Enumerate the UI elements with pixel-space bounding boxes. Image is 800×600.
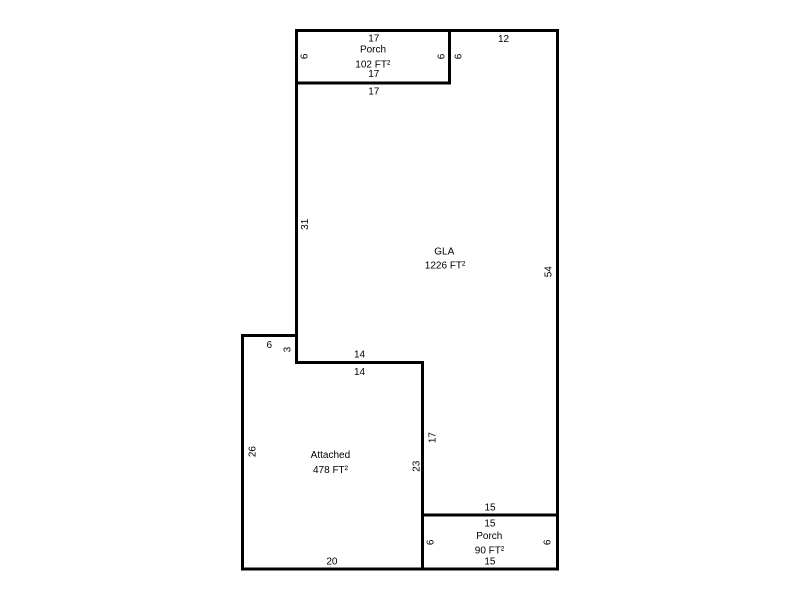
svg-text:6: 6 bbox=[300, 53, 311, 59]
svg-text:3: 3 bbox=[282, 346, 293, 352]
svg-text:23: 23 bbox=[411, 460, 422, 472]
svg-text:15: 15 bbox=[484, 502, 496, 513]
svg-text:6: 6 bbox=[453, 53, 464, 59]
svg-text:1226 FT²: 1226 FT² bbox=[425, 261, 466, 272]
svg-text:Porch: Porch bbox=[360, 45, 386, 56]
svg-text:Attached: Attached bbox=[311, 450, 350, 461]
svg-text:17: 17 bbox=[368, 87, 380, 98]
svg-text:17: 17 bbox=[427, 432, 438, 444]
svg-text:12: 12 bbox=[498, 34, 510, 45]
svg-text:17: 17 bbox=[368, 69, 380, 80]
svg-text:15: 15 bbox=[484, 557, 496, 568]
svg-text:6: 6 bbox=[543, 539, 554, 545]
svg-text:6: 6 bbox=[436, 53, 447, 59]
svg-text:15: 15 bbox=[484, 519, 496, 530]
svg-text:14: 14 bbox=[354, 367, 366, 378]
svg-text:6: 6 bbox=[426, 539, 437, 545]
svg-text:GLA: GLA bbox=[434, 246, 454, 257]
svg-text:Porch: Porch bbox=[476, 531, 502, 542]
svg-text:26: 26 bbox=[247, 446, 258, 458]
svg-text:17: 17 bbox=[368, 34, 380, 45]
svg-text:6: 6 bbox=[267, 340, 273, 351]
svg-text:31: 31 bbox=[300, 218, 311, 230]
svg-text:478 FT²: 478 FT² bbox=[313, 465, 349, 476]
svg-text:20: 20 bbox=[326, 557, 338, 568]
svg-text:90 FT²: 90 FT² bbox=[475, 545, 505, 556]
svg-text:14: 14 bbox=[354, 350, 366, 361]
svg-text:54: 54 bbox=[544, 266, 555, 278]
